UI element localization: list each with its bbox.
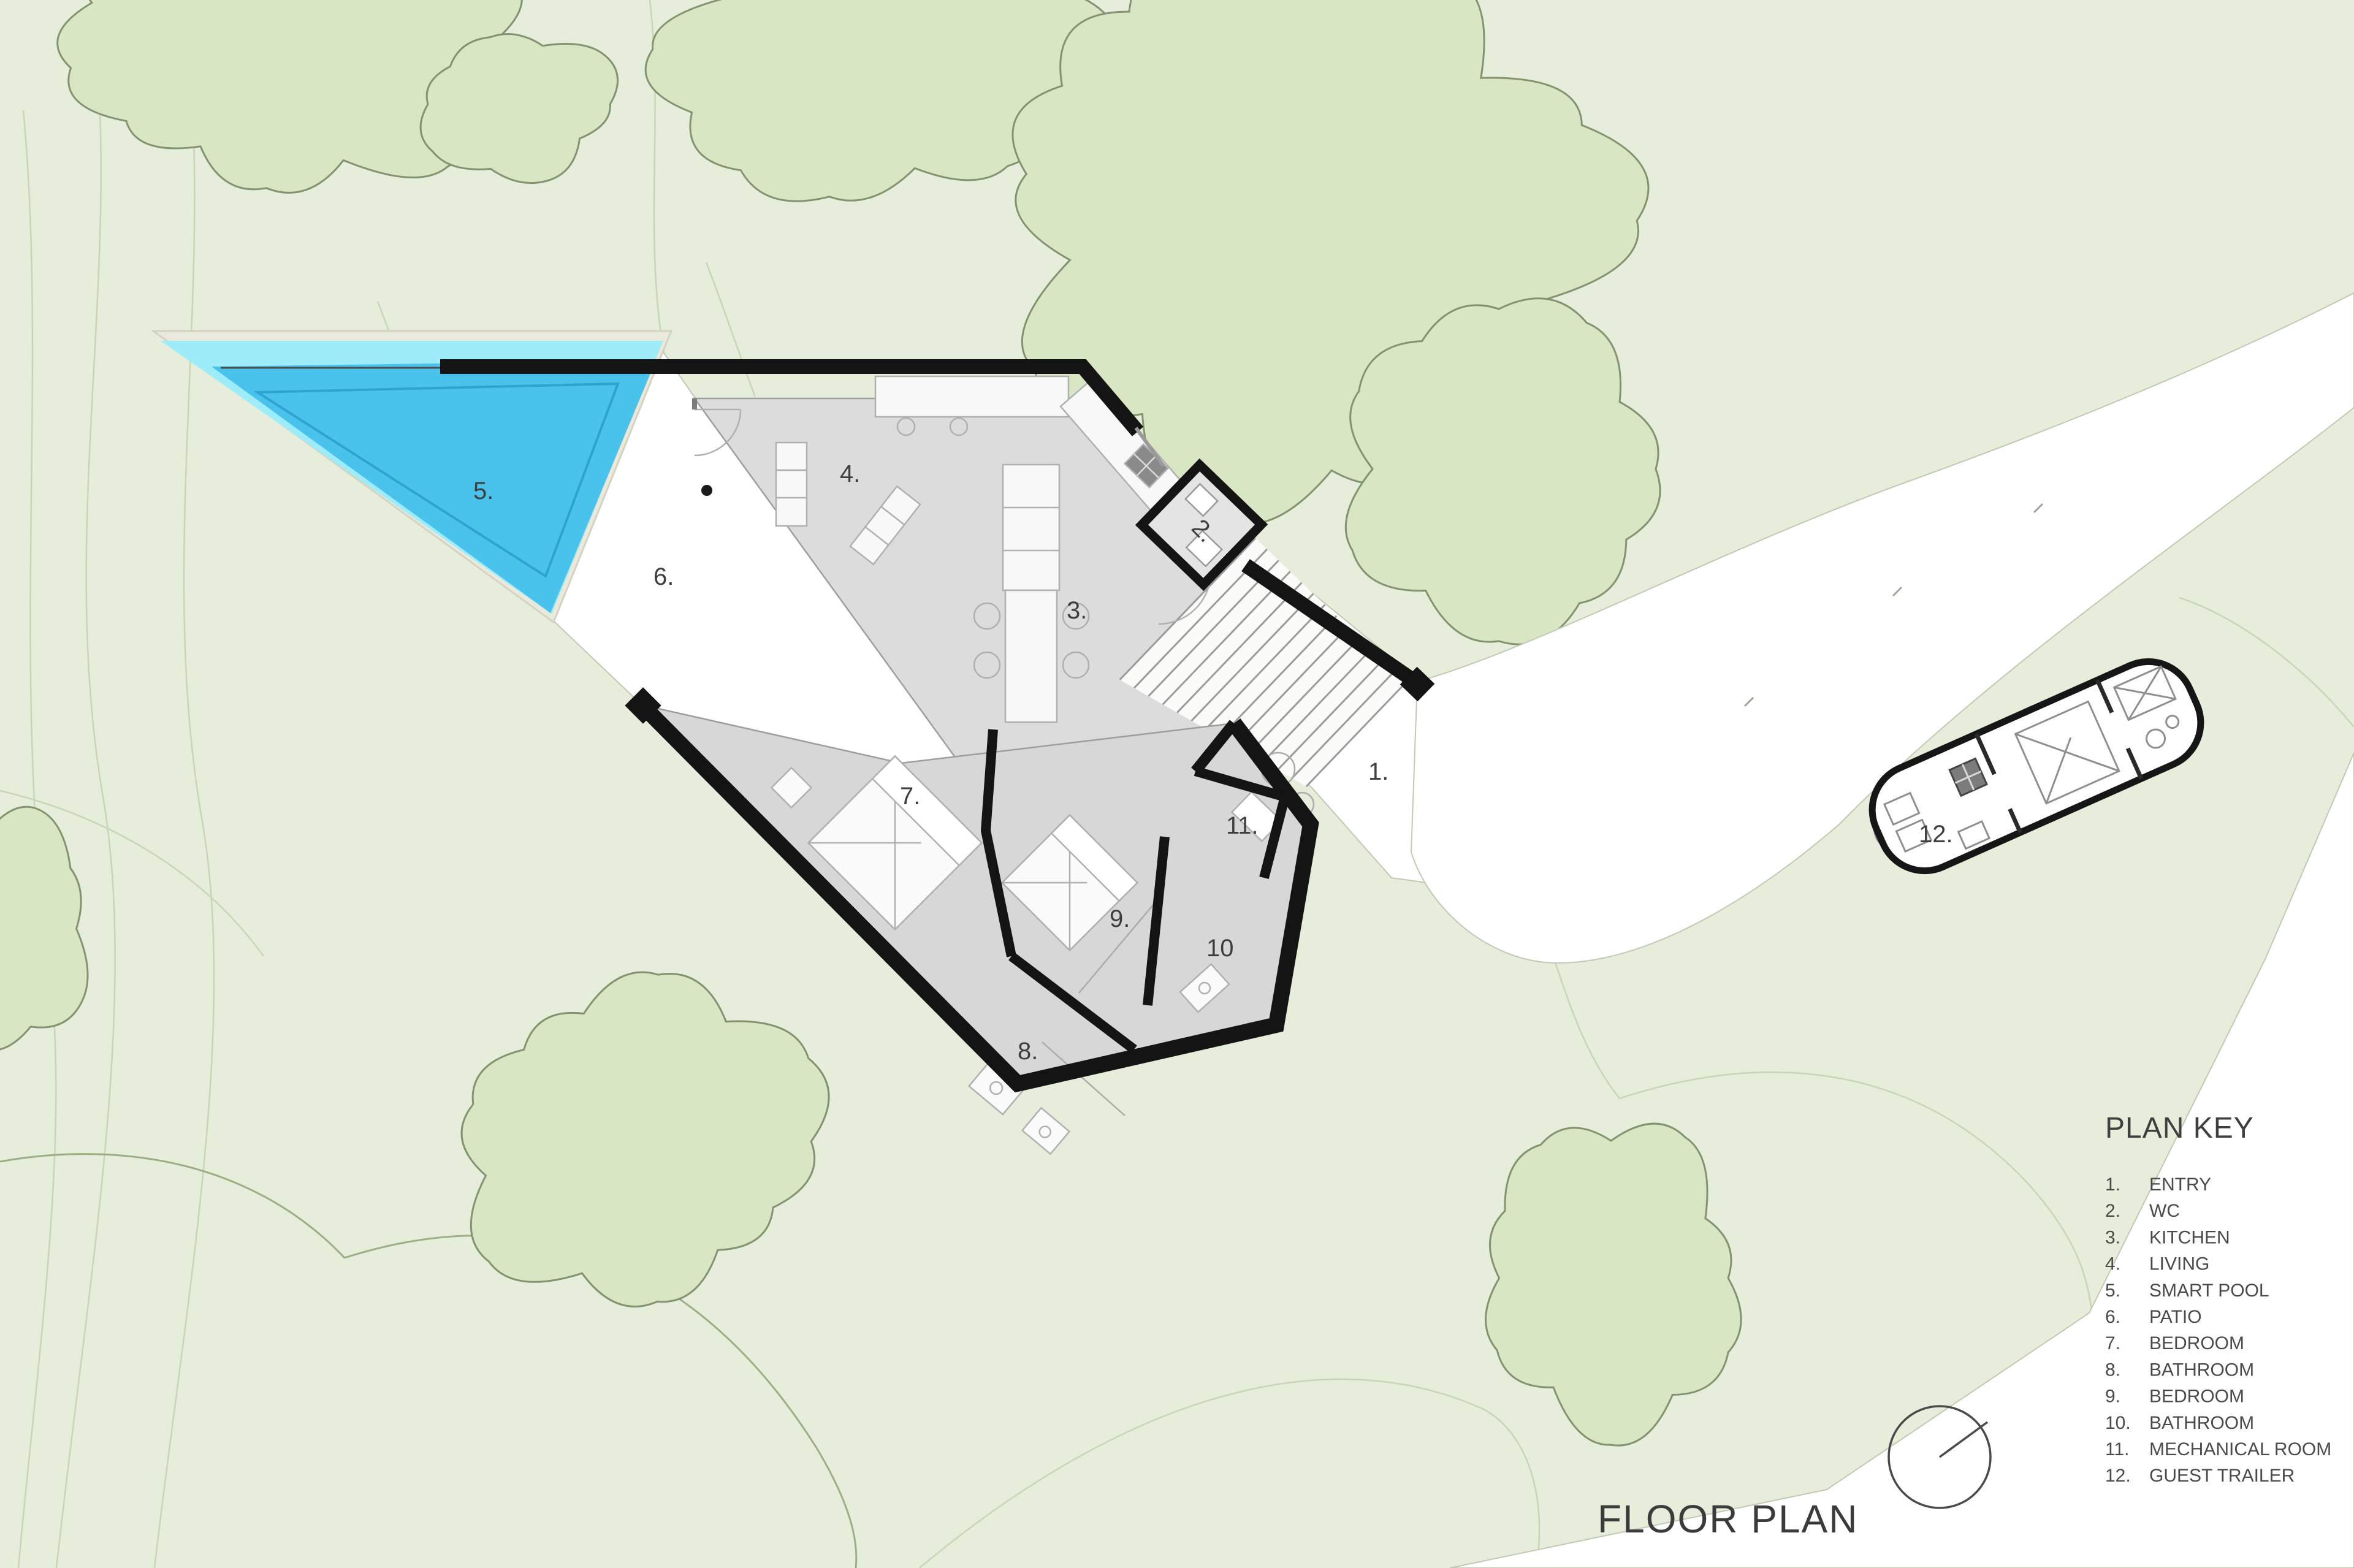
plan-key-item-number: 12. (2105, 1466, 2131, 1486)
plan-key-title: PLAN KEY (2105, 1112, 2254, 1144)
plan-key-item-label: MECHANICAL ROOM (2149, 1439, 2331, 1460)
plan-key-item-label: WC (2149, 1201, 2180, 1221)
room-label-mechanical: 11. (1226, 812, 1259, 839)
room-label-kitchen: 3. (1067, 597, 1087, 624)
floor-plan-sheet: 1. 2. 3. 4. 5. 6. 7. 8. 9. 10 11. 12. PL… (0, 0, 2354, 1568)
room-label-pool: 5. (473, 478, 493, 504)
plan-key-item-label: PATIO (2149, 1307, 2202, 1327)
plan-key-item-number: 1. (2105, 1174, 2120, 1195)
plan-key-item-number: 6. (2105, 1307, 2120, 1327)
plan-key-item-number: 8. (2105, 1360, 2120, 1380)
dining-table (1005, 590, 1057, 722)
plan-key-item-label: SMART POOL (2149, 1281, 2269, 1301)
plan-key-item-number: 2. (2105, 1201, 2120, 1221)
plan-key-item-number: 5. (2105, 1281, 2120, 1301)
room-label-trailer: 12. (1919, 821, 1953, 848)
sofa (776, 443, 807, 526)
plan-key-item-number: 3. (2105, 1227, 2120, 1247)
room-label-entry: 1. (1368, 758, 1388, 785)
kitchen-counter (875, 376, 1068, 417)
column-dot (701, 485, 712, 496)
room-label-bedroom7: 7. (900, 783, 920, 810)
plan-key-item-label: BEDROOM (2149, 1333, 2244, 1353)
plan-key-item-label: LIVING (2149, 1254, 2209, 1274)
plan-key-item-label: GUEST TRAILER (2149, 1466, 2295, 1486)
room-label-bathroom10: 10 (1206, 935, 1234, 962)
kitchen-island (1003, 465, 1059, 590)
plan-key-item-label: BATHROOM (2149, 1360, 2254, 1380)
plan-key-item-number: 10. (2105, 1413, 2131, 1433)
room-label-bedroom9: 9. (1110, 905, 1130, 932)
plan-key-item-number: 7. (2105, 1333, 2120, 1353)
plan-key-item-number: 4. (2105, 1254, 2120, 1274)
room-label-patio: 6. (653, 563, 674, 590)
plan-key-item-label: BEDROOM (2149, 1387, 2244, 1407)
plan-key-item-label: BATHROOM (2149, 1413, 2254, 1433)
drawing-title: FLOOR PLAN (1598, 1497, 1858, 1541)
plan-key-item-label: ENTRY (2149, 1174, 2211, 1195)
plan-key-item-number: 9. (2105, 1387, 2120, 1407)
plan-key-item-label: KITCHEN (2149, 1227, 2230, 1247)
plan-key-item-number: 11. (2105, 1439, 2129, 1460)
room-label-bathroom8: 8. (1018, 1038, 1038, 1065)
room-label-living: 4. (840, 460, 860, 487)
